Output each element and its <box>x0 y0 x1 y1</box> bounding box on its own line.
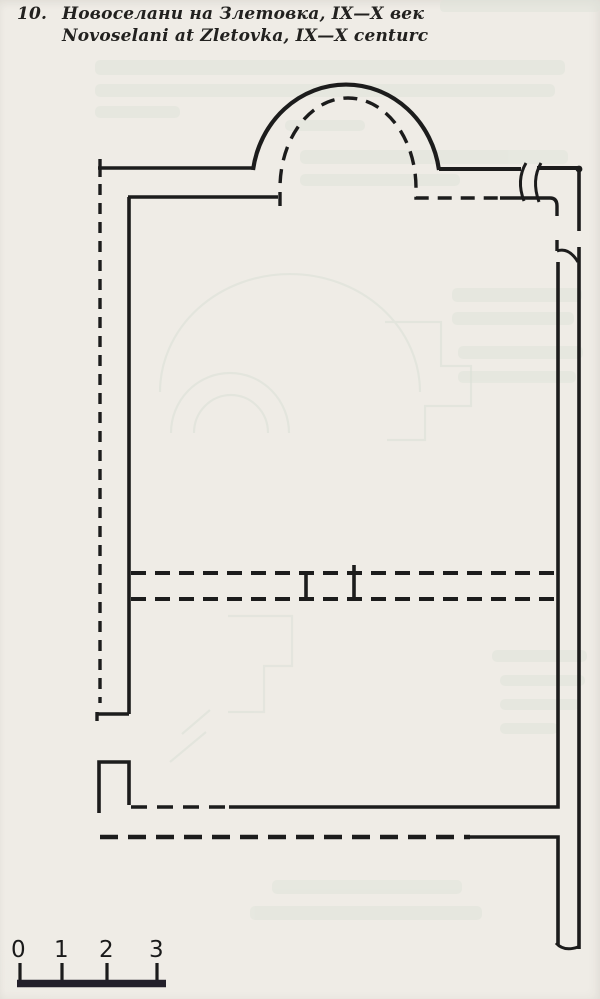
scale-bar-ticks <box>20 963 157 980</box>
bleedthrough-plan-ghost <box>160 274 471 762</box>
plan-dashed-walls <box>100 98 556 837</box>
scale-label-2: 2 <box>99 937 114 963</box>
north-wall-outer-right <box>439 168 580 169</box>
north-wall-inner-right <box>500 198 557 216</box>
scale-label-0: 0 <box>11 937 26 963</box>
scale-label-1: 1 <box>54 937 69 963</box>
scale-bar <box>17 963 166 984</box>
scanned-page: 10. Новоселани на Злетовка, IX—X век Nov… <box>0 0 600 999</box>
southwest-pilaster <box>99 762 129 813</box>
wall-break-symbol-right <box>557 250 578 262</box>
bleedthrough-text-bands <box>95 0 600 920</box>
south-annex-wall-right <box>468 837 558 945</box>
scale-label-3: 3 <box>149 937 164 963</box>
church-floor-plan <box>0 0 600 999</box>
narthex-west-return <box>97 712 129 721</box>
plan-solid-walls <box>97 85 582 949</box>
wall-break-symbol-top <box>520 163 541 202</box>
